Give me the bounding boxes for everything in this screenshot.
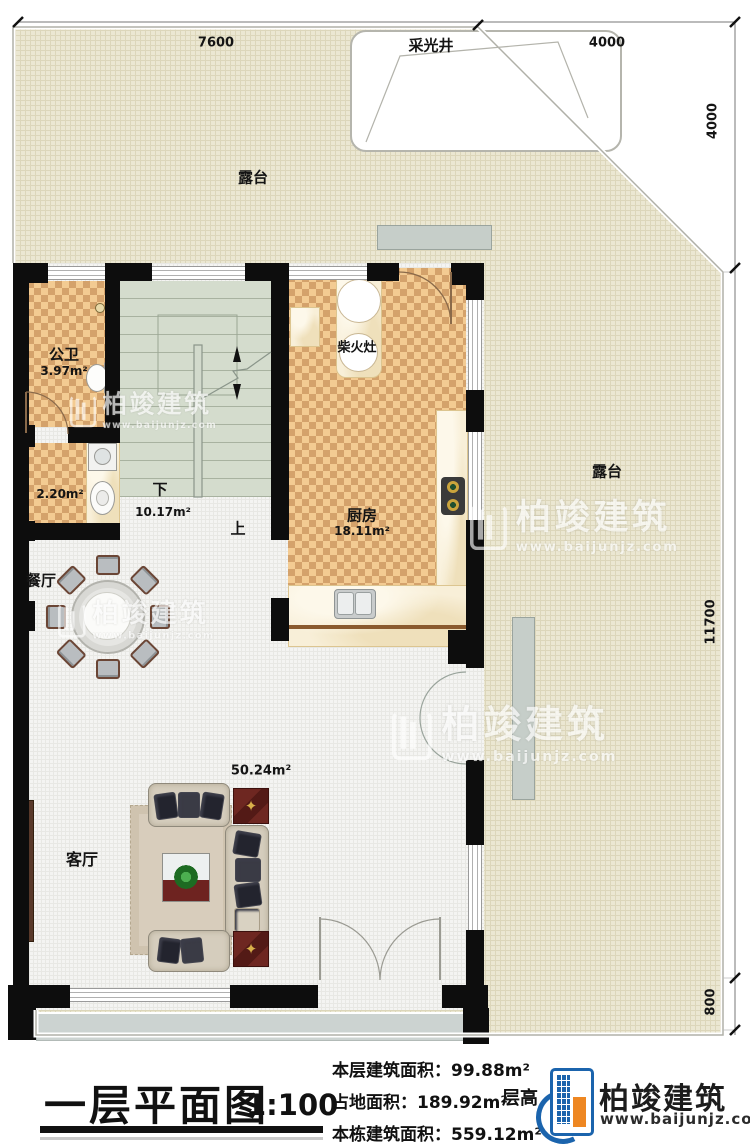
stat-footprint-area: 占地面积：189.92m² [332, 1088, 508, 1113]
stat-floor-area: 本层建筑面积：99.88m² [332, 1056, 530, 1081]
sofa-cushion [232, 830, 262, 858]
label-stairs-down: 下 [152, 479, 167, 500]
label-laundry-area: 2.20m² [36, 487, 83, 501]
wall [230, 985, 318, 1008]
side-table: ✦ [233, 788, 269, 824]
label-stairs-area: 10.17m² [135, 505, 191, 519]
dining-chair [96, 555, 120, 575]
wall [466, 760, 484, 845]
label-living-area: 50.24m² [231, 764, 291, 779]
window [288, 266, 367, 280]
washer-door-icon [94, 448, 111, 465]
brand-url: www.baijunjz.com [600, 1110, 750, 1128]
logo-tower-blue [556, 1074, 570, 1124]
stat-total-area: 本栋建筑面积：559.12m² [332, 1120, 542, 1145]
wall [68, 427, 120, 443]
title-underline [40, 1126, 323, 1133]
sofa-cushion [180, 937, 204, 964]
wall [367, 263, 399, 281]
wall [466, 263, 484, 300]
side-table: ✦ [233, 931, 269, 967]
wall [13, 425, 35, 447]
dining-chair [46, 605, 66, 629]
label-kitchen: 厨房 [347, 505, 377, 526]
logo-building [550, 1068, 594, 1136]
wall [8, 985, 70, 1008]
title-underline-2 [40, 1137, 323, 1140]
logo-tower-orange [573, 1097, 586, 1127]
dining-table-top [83, 592, 131, 640]
label-stairs-up: 上 [230, 518, 245, 539]
window [468, 845, 482, 930]
dim-right-bottom: 800 [704, 988, 719, 1015]
sofa-cushion [235, 858, 261, 882]
dim-right-top: 4000 [706, 103, 721, 139]
wall [448, 630, 484, 664]
basin-drain [96, 490, 109, 506]
sofa-cushion [153, 792, 178, 821]
sofa-cushion [233, 881, 262, 908]
label-bathroom-area: 3.97m² [40, 364, 87, 378]
porch-step [36, 1012, 479, 1041]
terrace-step [512, 617, 535, 800]
window [468, 300, 482, 390]
burner-icon [447, 481, 459, 493]
light-well [350, 30, 622, 152]
sofa-cushion [178, 792, 200, 818]
sheet-scale: 1:100 [246, 1088, 338, 1122]
wall [463, 1008, 489, 1044]
wall [271, 598, 289, 641]
label-dining: 餐厅 [26, 570, 56, 591]
light-fixture-icon [95, 303, 105, 313]
wall [13, 601, 35, 631]
wall [13, 523, 120, 540]
floor-height-prefix: 层高 [502, 1084, 538, 1110]
sofa-cushion [234, 908, 260, 932]
sheet-title: 一层平面图 [44, 1072, 269, 1133]
staircase [120, 281, 271, 497]
dim-top-right: 4000 [589, 36, 625, 51]
wall [105, 263, 120, 443]
wok-burner-large [337, 279, 381, 323]
burner-icon [447, 499, 459, 511]
dim-right-middle: 11700 [704, 599, 719, 644]
label-kitchen-area: 18.11m² [334, 524, 390, 538]
label-living: 客厅 [66, 846, 98, 870]
counter-edge [288, 625, 466, 629]
sofa-cushion [199, 791, 225, 820]
label-skylight: 采光井 [408, 35, 453, 56]
wall [442, 985, 488, 1008]
wall [466, 390, 484, 432]
wall [13, 263, 29, 1010]
dining-chair [150, 605, 170, 629]
kitchen-bottom-counter [288, 585, 468, 647]
plant-icon [174, 865, 198, 889]
label-terrace-top: 露台 [238, 167, 268, 188]
label-wood-stove: 柴火灶 [337, 337, 376, 356]
brand-logo-icon [536, 1064, 598, 1140]
window [70, 988, 230, 1002]
floor-plan-canvas: ✦ ✦ [0, 0, 750, 1147]
label-bathroom: 公卫 [49, 344, 79, 365]
sink-basin [337, 592, 354, 615]
sink-basin [355, 592, 372, 615]
sofa-cushion [157, 937, 182, 964]
dim-top-left: 7600 [198, 36, 234, 51]
dining-chair [96, 659, 120, 679]
wall [271, 263, 289, 540]
window [152, 266, 245, 280]
kitchen-side-counter [290, 307, 320, 347]
label-terrace-right: 露台 [592, 461, 622, 482]
window [468, 432, 482, 520]
terrace-mat [377, 225, 492, 250]
window [48, 266, 105, 280]
